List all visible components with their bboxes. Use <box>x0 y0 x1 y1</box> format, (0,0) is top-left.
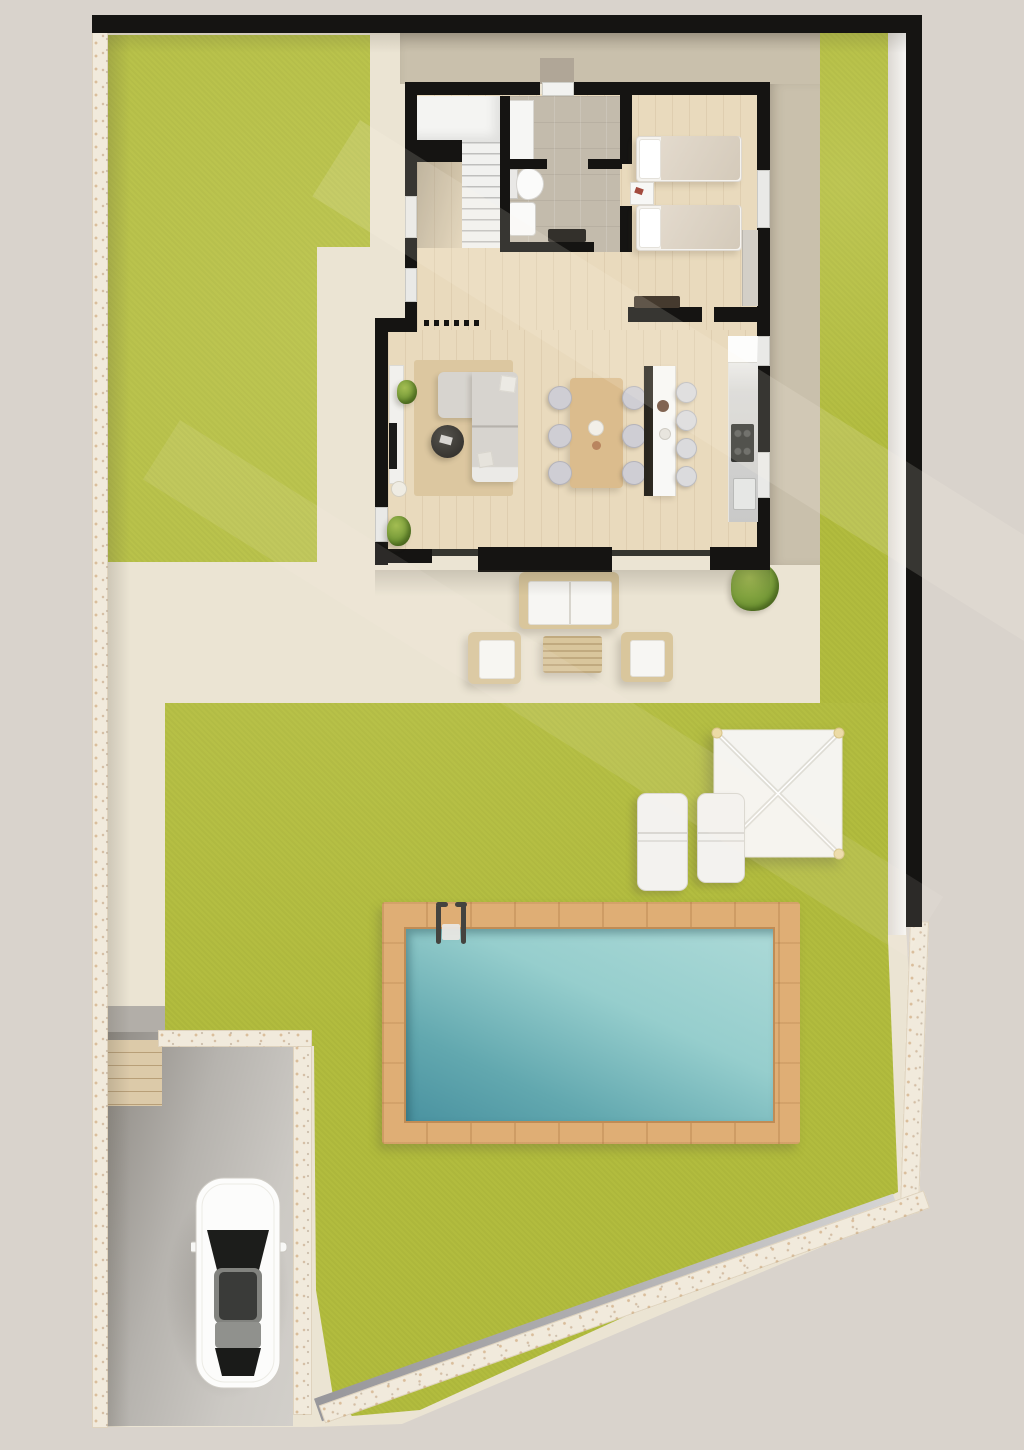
floor-lamp <box>391 481 407 497</box>
pool-ladder <box>428 896 476 952</box>
house-wall-right-4 <box>757 498 770 550</box>
window-left-3 <box>375 507 388 542</box>
stair-landing <box>417 96 500 142</box>
shower-column <box>506 100 534 160</box>
kitchen-sink <box>733 478 756 510</box>
shadow-left-wall <box>108 35 130 1427</box>
bed-1-duvet <box>661 136 740 180</box>
wall-bath-top-b <box>588 159 622 169</box>
sofa-pillow-2 <box>477 451 494 468</box>
sofa-pillow-1 <box>499 375 517 393</box>
car-white-top-view <box>191 1176 287 1394</box>
driveway-stone-wall <box>293 1030 312 1415</box>
wall-bedroom-a <box>620 82 632 164</box>
window-right-2 <box>757 336 770 366</box>
ladder-rail-right <box>461 904 466 944</box>
ladder-top-bar-left <box>436 902 448 907</box>
tv-screen <box>389 423 397 469</box>
wardrobe <box>742 230 758 306</box>
top-black-wall <box>92 15 922 33</box>
bed-2-pillow <box>639 208 661 248</box>
car-windshield <box>207 1230 269 1270</box>
bed-2-duvet <box>661 205 740 249</box>
left-stone-wall <box>92 25 108 1428</box>
car-rear-window <box>215 1348 261 1376</box>
house-wall-left-lower-1 <box>375 318 388 507</box>
bar-stool-3 <box>676 438 697 459</box>
window-left-2 <box>405 268 417 302</box>
dining-table-bowl <box>588 420 604 436</box>
stair-void-railing-dots <box>424 320 480 326</box>
stair-rail-wall <box>417 140 462 162</box>
dining-chair-l1 <box>548 386 572 410</box>
house-wall-bottom-3 <box>710 547 770 570</box>
ladder-top-bar-right <box>455 902 467 907</box>
outdoor-armchair-right-cushion <box>630 640 665 677</box>
island-plate <box>659 428 671 440</box>
bed-1-pillow <box>639 139 661 179</box>
sliding-door-glass-1 <box>432 549 478 556</box>
house-wall-mid-stub <box>375 318 417 332</box>
house-wall-mid-right-2 <box>714 307 770 322</box>
dining-chair-r2 <box>622 424 646 448</box>
entry-door-leaf <box>542 82 574 96</box>
house-wall-top-right <box>572 82 770 95</box>
sliding-door-glass-2 <box>612 550 712 556</box>
entry-door-mat <box>540 58 574 84</box>
site-plan-scene <box>0 0 1024 1450</box>
pool-water <box>404 927 775 1123</box>
driveway-stone-wall-cap <box>158 1030 312 1047</box>
car-sunroof <box>219 1272 257 1320</box>
dining-chair-l3 <box>548 461 572 485</box>
house-wall-top-left <box>405 82 540 95</box>
wall-bedroom-b <box>620 206 632 252</box>
house-wall-right-1 <box>757 82 770 170</box>
dining-chair-l2 <box>548 424 572 448</box>
car-rear-deck <box>215 1322 261 1348</box>
canopy-post-1 <box>712 728 722 738</box>
shadow-top-wall <box>108 33 906 53</box>
canopy-post-2 <box>834 728 844 738</box>
ladder-platform <box>442 924 460 940</box>
dining-chair-r3 <box>622 461 646 485</box>
side-grass-strip <box>820 33 888 710</box>
house-wall-bottom-2 <box>478 547 612 572</box>
ladder-rail-left <box>436 904 441 944</box>
wall-bath-top-a <box>505 159 547 169</box>
bar-stool-4 <box>676 466 697 487</box>
dining-table-vase <box>592 441 601 450</box>
window-right-1 <box>757 170 770 228</box>
